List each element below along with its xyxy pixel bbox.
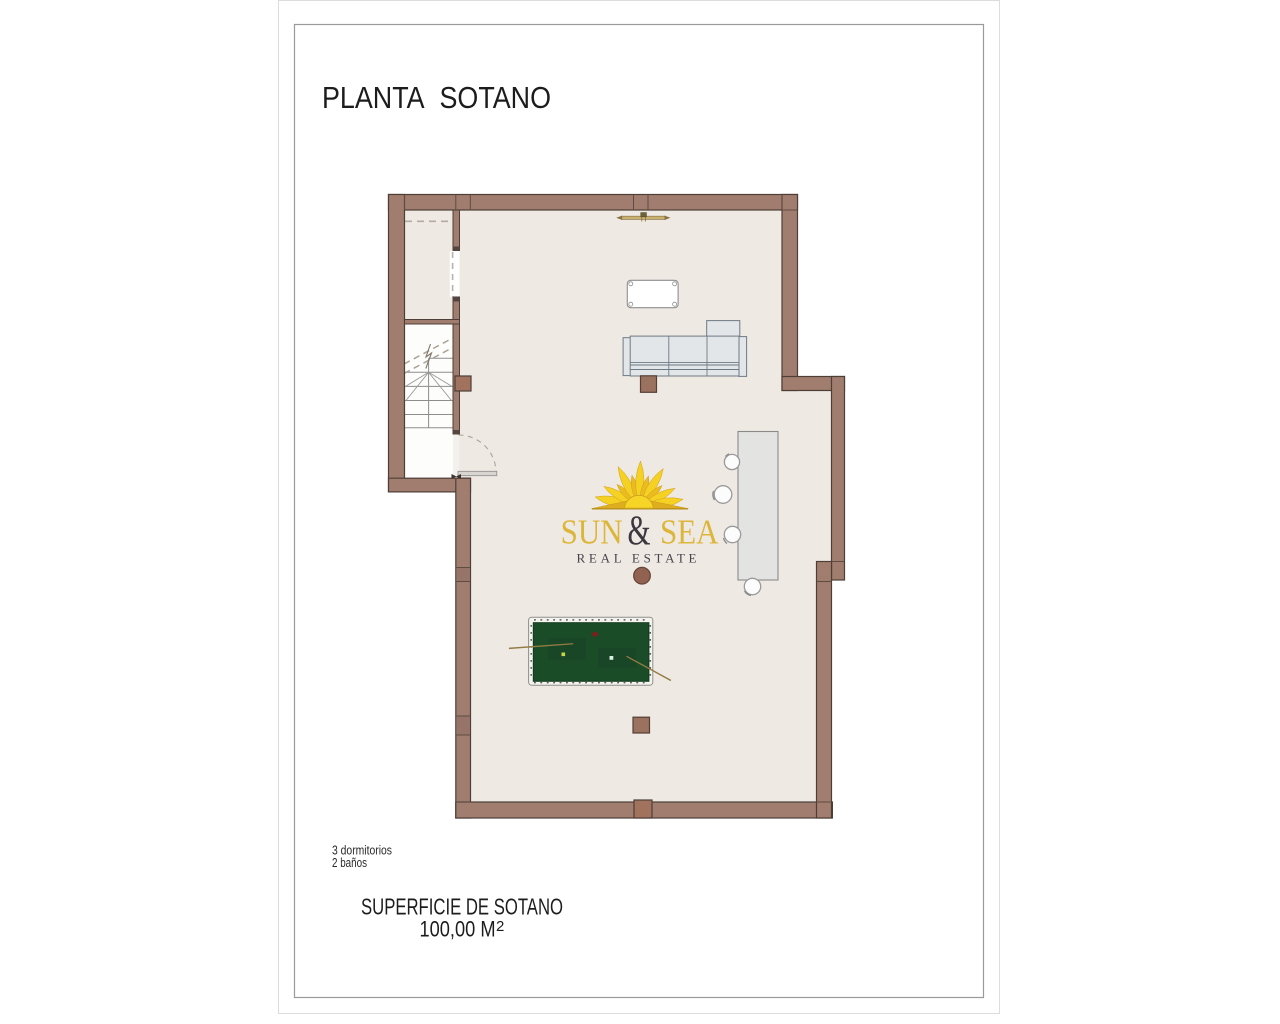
svg-text:2: 2	[496, 918, 504, 935]
svg-text:SUN: SUN	[561, 514, 623, 552]
svg-text:SEA: SEA	[660, 514, 719, 552]
svg-text:&: &	[628, 509, 651, 555]
svg-text:2 baños: 2 baños	[332, 856, 367, 870]
svg-text:REAL ESTATE: REAL ESTATE	[577, 551, 701, 566]
svg-text:PLANTA SOTANO: PLANTA SOTANO	[322, 80, 551, 115]
svg-text:100,00 M: 100,00 M	[420, 917, 496, 942]
